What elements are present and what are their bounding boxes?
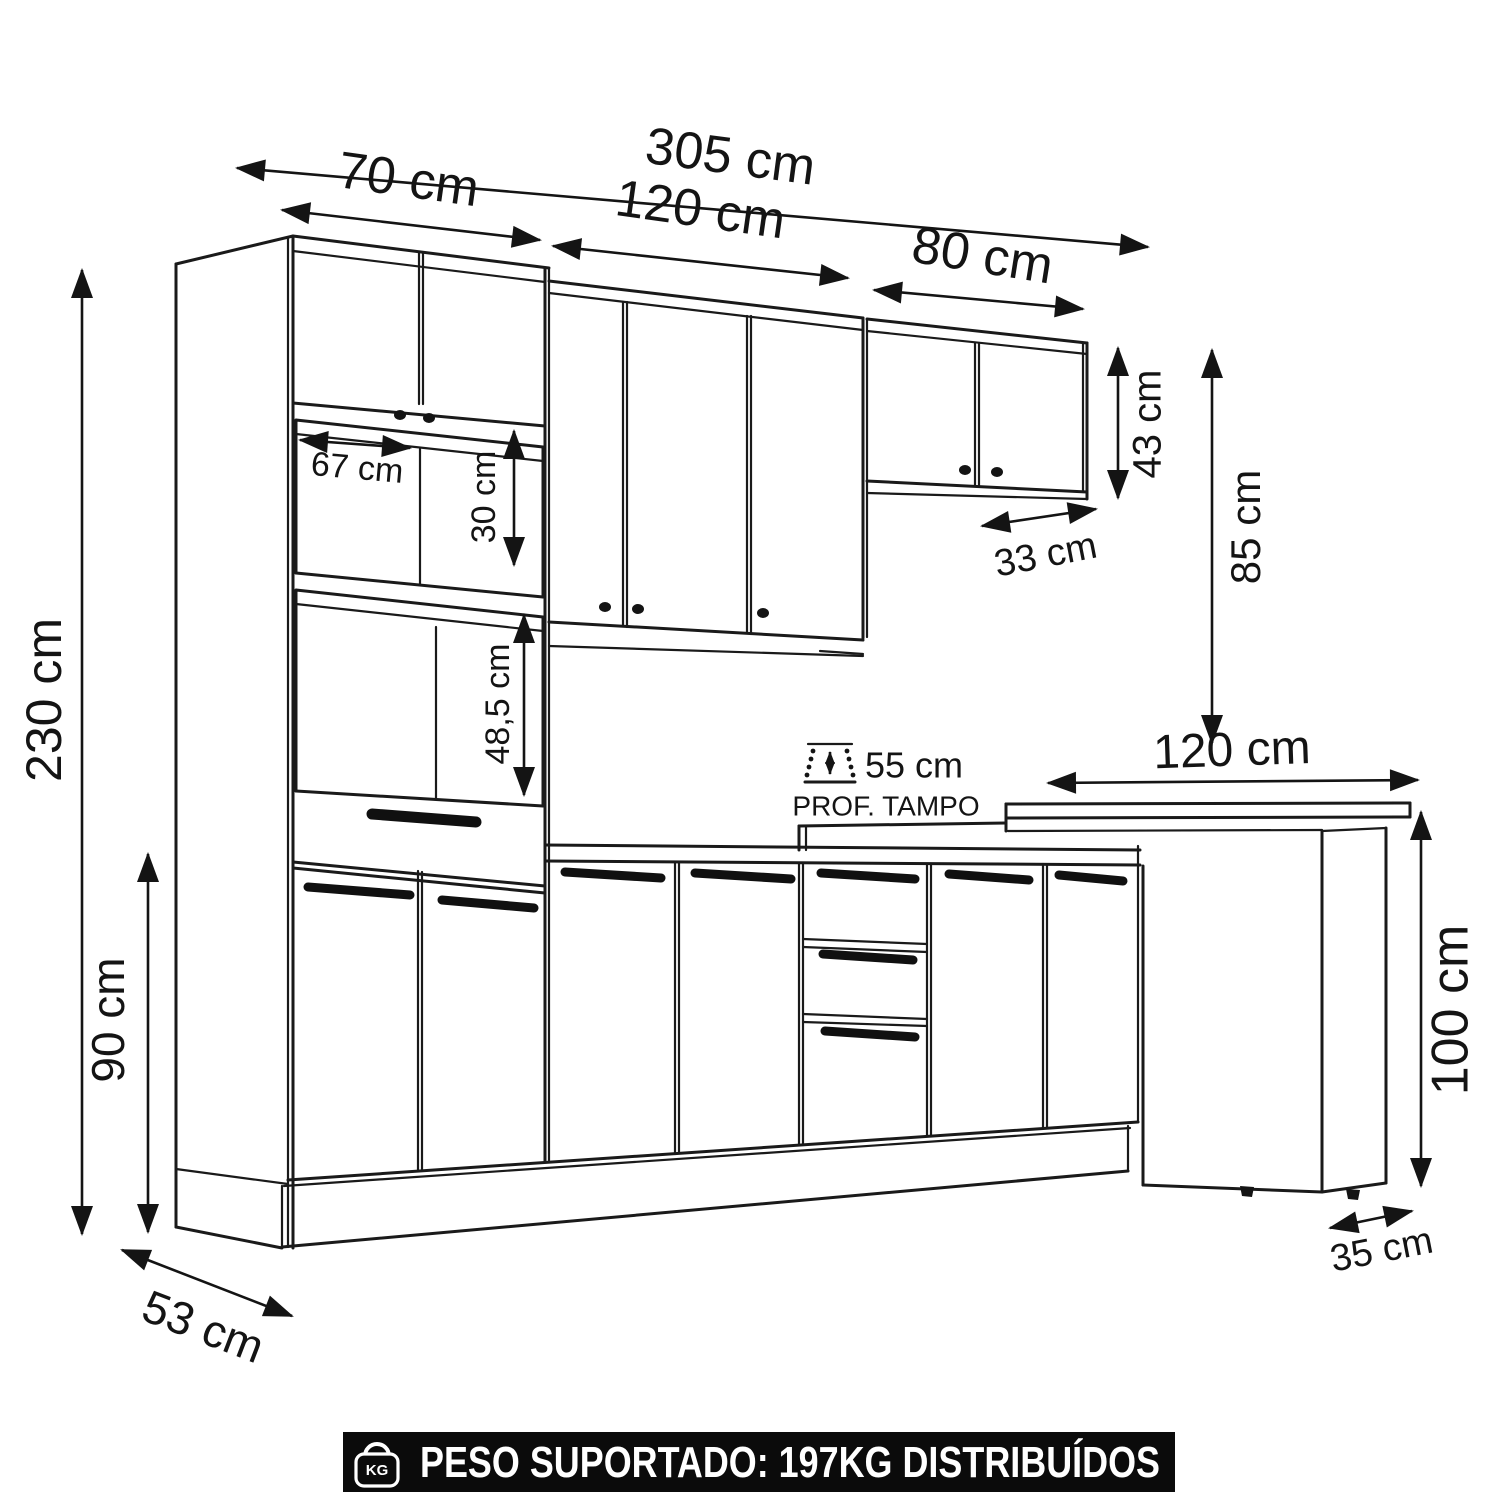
wall-cabinet-80 (867, 319, 1087, 499)
dim-arrow-120-bar (1048, 780, 1418, 783)
bar-top-bottom-edge (1006, 817, 1410, 818)
bar-side-top-edge (1322, 828, 1386, 831)
depth-icon (805, 744, 856, 782)
countertop-top-edge (545, 845, 1140, 850)
tall-cabinet-side-bottom-edge (176, 1227, 282, 1248)
dim-arrow-80 (874, 290, 1083, 309)
upper-door-knob-right (423, 413, 435, 423)
wall120-underside-back-edge (549, 646, 863, 656)
backsplash-top-edge (799, 823, 1006, 826)
lower-door-handle-right (442, 900, 534, 908)
tall-drawer-handle (372, 814, 476, 822)
dim-label-120-bar: 120 cm (1152, 721, 1311, 779)
upper-door-knob-left (394, 410, 406, 420)
wall80-knob (991, 467, 1003, 477)
drawer-separator (803, 1014, 927, 1019)
bar-top-edge (1006, 803, 1410, 804)
niche2-ceiling-back-edge (296, 604, 543, 631)
dim-arrow-33 (982, 509, 1096, 526)
bar-foot (1240, 1186, 1254, 1197)
dim-label-100: 100 cm (1422, 925, 1480, 1096)
dim-label-85: 85 cm (1222, 470, 1269, 584)
dim-label-70: 70 cm (334, 141, 482, 218)
dim-arrow-70 (282, 210, 540, 240)
diagram-canvas: 305 cm 70 cm 120 cm 80 cm 230 cm 90 cm 6… (0, 0, 1500, 1500)
label-prof-tampo: PROF. TAMPO (792, 790, 979, 821)
tall-cabinet-side-plinth-line (176, 1169, 288, 1184)
dim-label-230: 230 cm (16, 618, 72, 782)
plinth-top-edge (284, 1128, 1130, 1186)
plinth-bottom-edge (282, 1171, 1128, 1247)
bar-foot (1346, 1189, 1360, 1200)
dim-label-55: 55 cm (865, 745, 963, 786)
bar-panel-bottom-edge (1143, 1185, 1322, 1192)
dim-label-43: 43 cm (1126, 370, 1170, 479)
drawer-separator (803, 1022, 927, 1026)
drawer-handle-1 (821, 873, 915, 879)
base-cabinets (282, 845, 1140, 1247)
bar-top-lip (1008, 830, 1322, 831)
dim-label-67: 67 cm (309, 445, 405, 491)
base-door-handle (1059, 875, 1123, 881)
base-door-handle (695, 873, 791, 879)
base-doors-bottom-edge (288, 1122, 1138, 1180)
dim-label-33: 33 cm (991, 525, 1101, 586)
dim-label-30: 30 cm (465, 451, 503, 544)
wall80-doors-bottom-edge (867, 481, 1087, 492)
base-door-handle (565, 872, 661, 878)
bar-counter (1006, 803, 1410, 1200)
wall120-knob (757, 608, 769, 618)
weight-banner: KG PESO SUPORTADO: 197KG DISTRIBUÍDOS (343, 1432, 1175, 1492)
wall80-top-edge (867, 319, 1087, 343)
lower-door-handle-left (308, 887, 410, 895)
countertop-bottom-edge (545, 861, 1140, 865)
wall80-knob (959, 465, 971, 475)
dim-label-90: 90 cm (82, 957, 134, 1082)
dim-label-35: 35 cm (1327, 1220, 1437, 1281)
base-door-handle (949, 874, 1029, 880)
wall120-doors-bottom-edge (549, 622, 863, 640)
dim-label-485: 48,5 cm (479, 644, 517, 765)
wall80-door-top-edge (867, 331, 1087, 354)
cabinet-dimension-diagram: 305 cm 70 cm 120 cm 80 cm 230 cm 90 cm 6… (0, 0, 1500, 1500)
niche2-bottom-edge (296, 791, 543, 806)
drawer-handle-3 (825, 1031, 915, 1037)
kg-icon-label: KG (366, 1462, 389, 1479)
wall80-underside-edge (867, 493, 1087, 499)
drawer-separator (803, 939, 927, 944)
banner-text: PESO SUPORTADO: 197KG DISTRIBUÍDOS (420, 1437, 1160, 1487)
wall120-knob (632, 604, 644, 614)
tall-cabinet-top-edges (176, 236, 549, 268)
dim-label-53: 53 cm (136, 1280, 272, 1373)
dim-label-80: 80 cm (908, 216, 1057, 295)
wall120-underside-corner (820, 651, 863, 654)
wall-cabinet-120 (549, 281, 867, 656)
dim-arrow-120-top (553, 246, 848, 278)
wall120-knob (599, 602, 611, 612)
drawer-handle-2 (823, 954, 913, 960)
